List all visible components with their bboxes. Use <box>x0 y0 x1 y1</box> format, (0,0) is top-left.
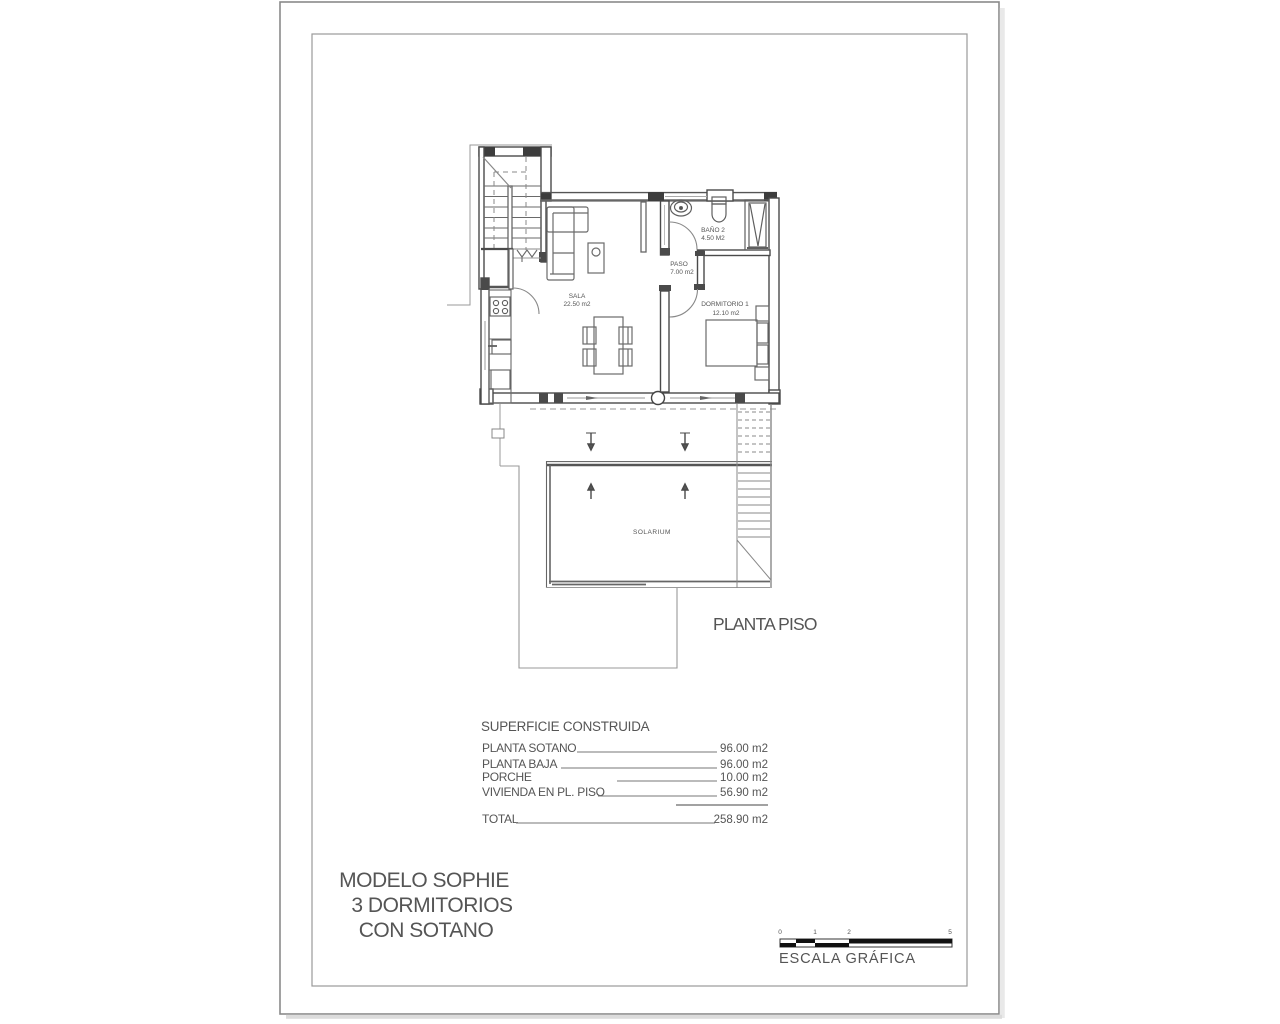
svg-text:1: 1 <box>813 929 817 936</box>
svg-text:SALA: SALA <box>569 293 586 300</box>
svg-text:12.10 m2: 12.10 m2 <box>712 310 739 317</box>
svg-text:0: 0 <box>778 929 782 936</box>
svg-text:96.00 m2: 96.00 m2 <box>720 759 768 771</box>
svg-text:DORMITORIO 1: DORMITORIO 1 <box>701 301 749 308</box>
svg-text:5: 5 <box>948 929 952 936</box>
svg-text:96.00 m2: 96.00 m2 <box>720 743 768 755</box>
svg-text:ESCALA GRÁFICA: ESCALA GRÁFICA <box>779 950 916 967</box>
svg-text:258.90 m2: 258.90 m2 <box>714 814 768 826</box>
svg-text:VIVIENDA EN PL. PISO: VIVIENDA EN PL. PISO <box>482 785 605 799</box>
svg-text:2: 2 <box>847 929 851 936</box>
svg-text:3 DORMITORIOS: 3 DORMITORIOS <box>351 894 513 917</box>
svg-text:PLANTA SOTANO: PLANTA SOTANO <box>482 741 576 755</box>
svg-text:10.00 m2: 10.00 m2 <box>720 772 768 784</box>
svg-text:BAÑO 2: BAÑO 2 <box>701 225 725 234</box>
svg-text:SUPERFICIE CONSTRUIDA: SUPERFICIE CONSTRUIDA <box>481 719 650 734</box>
svg-text:SOLARIUM: SOLARIUM <box>633 529 671 536</box>
svg-text:56.90 m2: 56.90 m2 <box>720 787 768 799</box>
svg-text:PORCHE: PORCHE <box>482 770 532 784</box>
svg-text:4.50 M2: 4.50 M2 <box>701 235 725 242</box>
svg-text:PASO: PASO <box>670 261 688 268</box>
svg-text:22.50 m2: 22.50 m2 <box>563 301 590 308</box>
svg-text:TOTAL: TOTAL <box>482 812 519 826</box>
svg-text:MODELO SOPHIE: MODELO SOPHIE <box>339 869 509 892</box>
svg-text:CON SOTANO: CON SOTANO <box>359 919 494 942</box>
svg-text:PLANTA BAJA: PLANTA BAJA <box>482 757 557 771</box>
svg-text:PLANTA PISO: PLANTA PISO <box>713 614 817 634</box>
svg-text:7.00 m2: 7.00 m2 <box>670 269 694 276</box>
